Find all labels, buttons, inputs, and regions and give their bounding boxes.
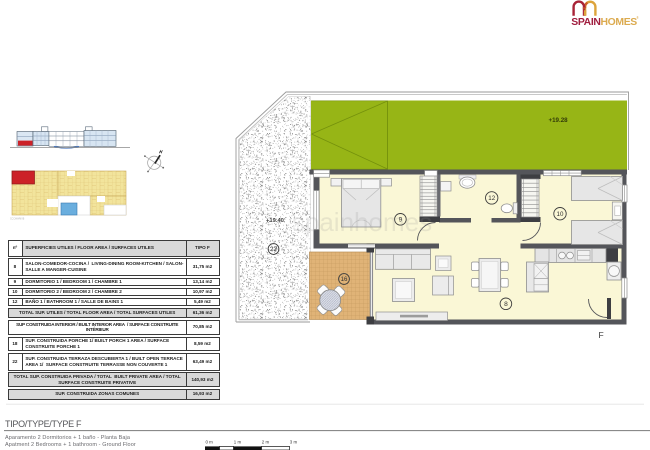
svg-text:12: 12 bbox=[488, 195, 495, 202]
svg-text:3 m: 3 m bbox=[290, 439, 298, 444]
svg-text:+19.28: +19.28 bbox=[549, 117, 569, 124]
svg-text:CCCWWMXB: CCCWWMXB bbox=[10, 219, 25, 221]
svg-text:spainhomes: spainhomes bbox=[292, 207, 432, 237]
svg-text:SPAINHOMES: SPAINHOMES bbox=[571, 17, 637, 28]
svg-text:2 m: 2 m bbox=[262, 439, 270, 444]
svg-text:1 m: 1 m bbox=[234, 439, 242, 444]
svg-text:+19.40: +19.40 bbox=[266, 218, 284, 224]
svg-text:F: F bbox=[599, 330, 604, 340]
svg-text:16: 16 bbox=[341, 277, 348, 283]
svg-text:®: ® bbox=[636, 16, 639, 20]
svg-text:10: 10 bbox=[557, 211, 564, 218]
svg-text:22: 22 bbox=[270, 247, 277, 253]
svg-text:8: 8 bbox=[504, 301, 508, 308]
svg-text:0 m: 0 m bbox=[206, 439, 214, 444]
